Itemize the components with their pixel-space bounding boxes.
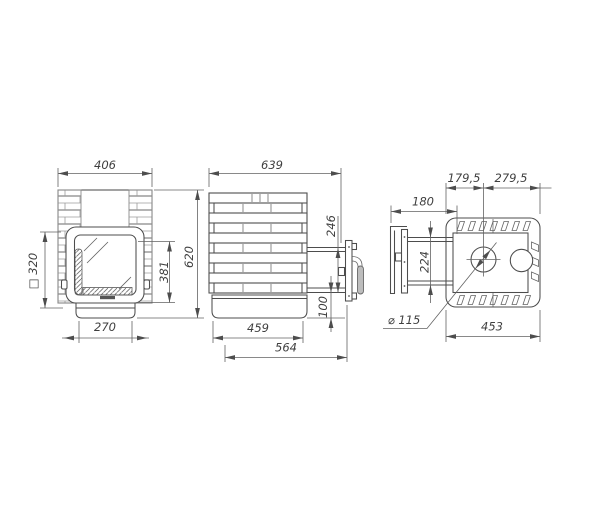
handle-grip-side <box>358 266 364 294</box>
door-handle <box>75 249 82 295</box>
top-view <box>391 218 541 307</box>
dim-tunnel-length-label: 180 <box>412 195 434 209</box>
dimension-tunnel-height: 246 <box>324 215 340 292</box>
stove-technical-drawing: 406 □ 320 381 620 270 <box>0 0 600 513</box>
dim-front-to-chimney-label: 179,5 <box>448 171 481 185</box>
dimension-front-width: 406 <box>58 158 152 187</box>
door-flange-side <box>346 241 353 302</box>
dim-base-depth-label: 459 <box>247 321 269 335</box>
dimension-top-width: 453 <box>446 310 540 342</box>
dim-front-opening-label: □ 320 <box>26 253 40 289</box>
dim-tunnel-width-label: 224 <box>418 251 432 273</box>
dimension-chimney-to-back: 279,5 <box>484 171 541 190</box>
dim-tunnel-height-label: 246 <box>324 215 338 237</box>
dim-side-depth-label: 639 <box>261 158 283 172</box>
side-tab-right <box>144 280 150 289</box>
dim-base-offset-label: 100 <box>316 296 330 318</box>
front-base <box>76 303 135 318</box>
dim-front-door-height-label: 381 <box>157 261 171 283</box>
latch-side <box>339 268 345 276</box>
dim-chimney-to-back-label: 279,5 <box>495 171 528 185</box>
dimension-front-base-width: 270 <box>62 320 149 343</box>
dim-top-width-label: 453 <box>481 320 503 334</box>
latch-top <box>396 253 402 261</box>
dim-front-base-width-label: 270 <box>94 320 116 334</box>
dimension-tunnel-width: 224 <box>418 221 433 303</box>
dim-chimney-diameter-label: ⌀ 115 <box>388 313 421 327</box>
door-latch-strip <box>100 296 115 299</box>
side-view <box>209 193 364 318</box>
dim-total-depth-label: 564 <box>275 341 297 355</box>
dimension-front-opening: □ 320 <box>26 232 63 308</box>
side-tab-left <box>62 280 68 289</box>
door-grate <box>83 288 132 296</box>
dim-front-width-label: 406 <box>94 158 116 172</box>
dim-height-label: 620 <box>182 246 196 268</box>
secondary-hole <box>510 249 532 271</box>
front-view <box>58 190 152 318</box>
